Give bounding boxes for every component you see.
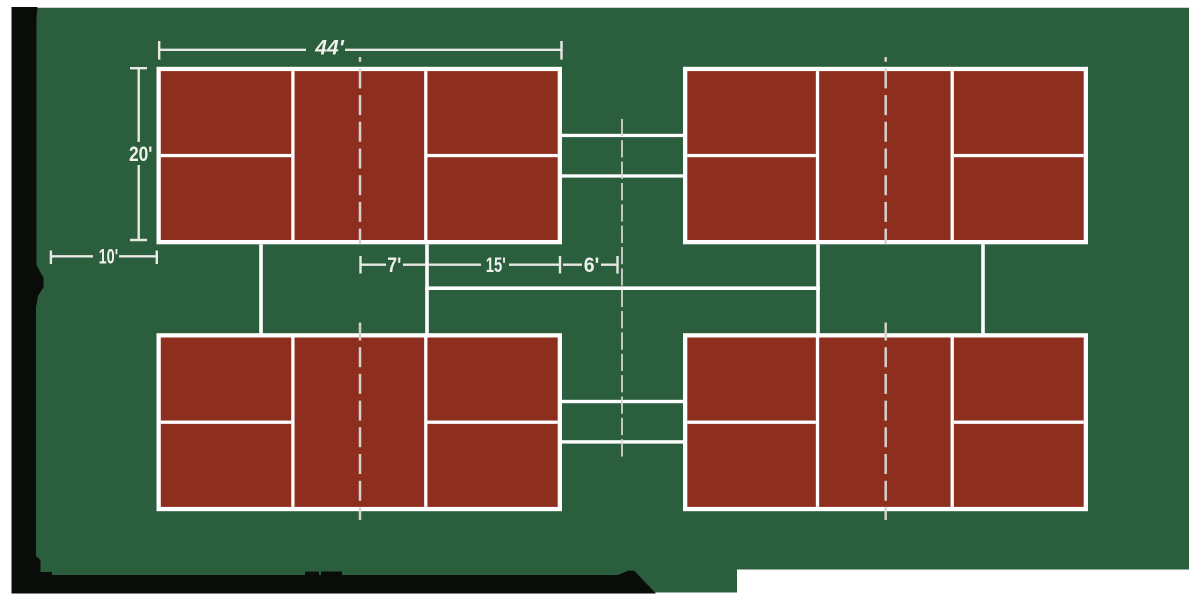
svg-text:15': 15' [486, 253, 506, 277]
svg-text:44': 44' [314, 35, 344, 59]
svg-text:20': 20' [129, 142, 153, 166]
svg-text:10': 10' [99, 244, 119, 268]
svg-text:6': 6' [584, 253, 600, 277]
svg-text:7': 7' [387, 253, 401, 277]
